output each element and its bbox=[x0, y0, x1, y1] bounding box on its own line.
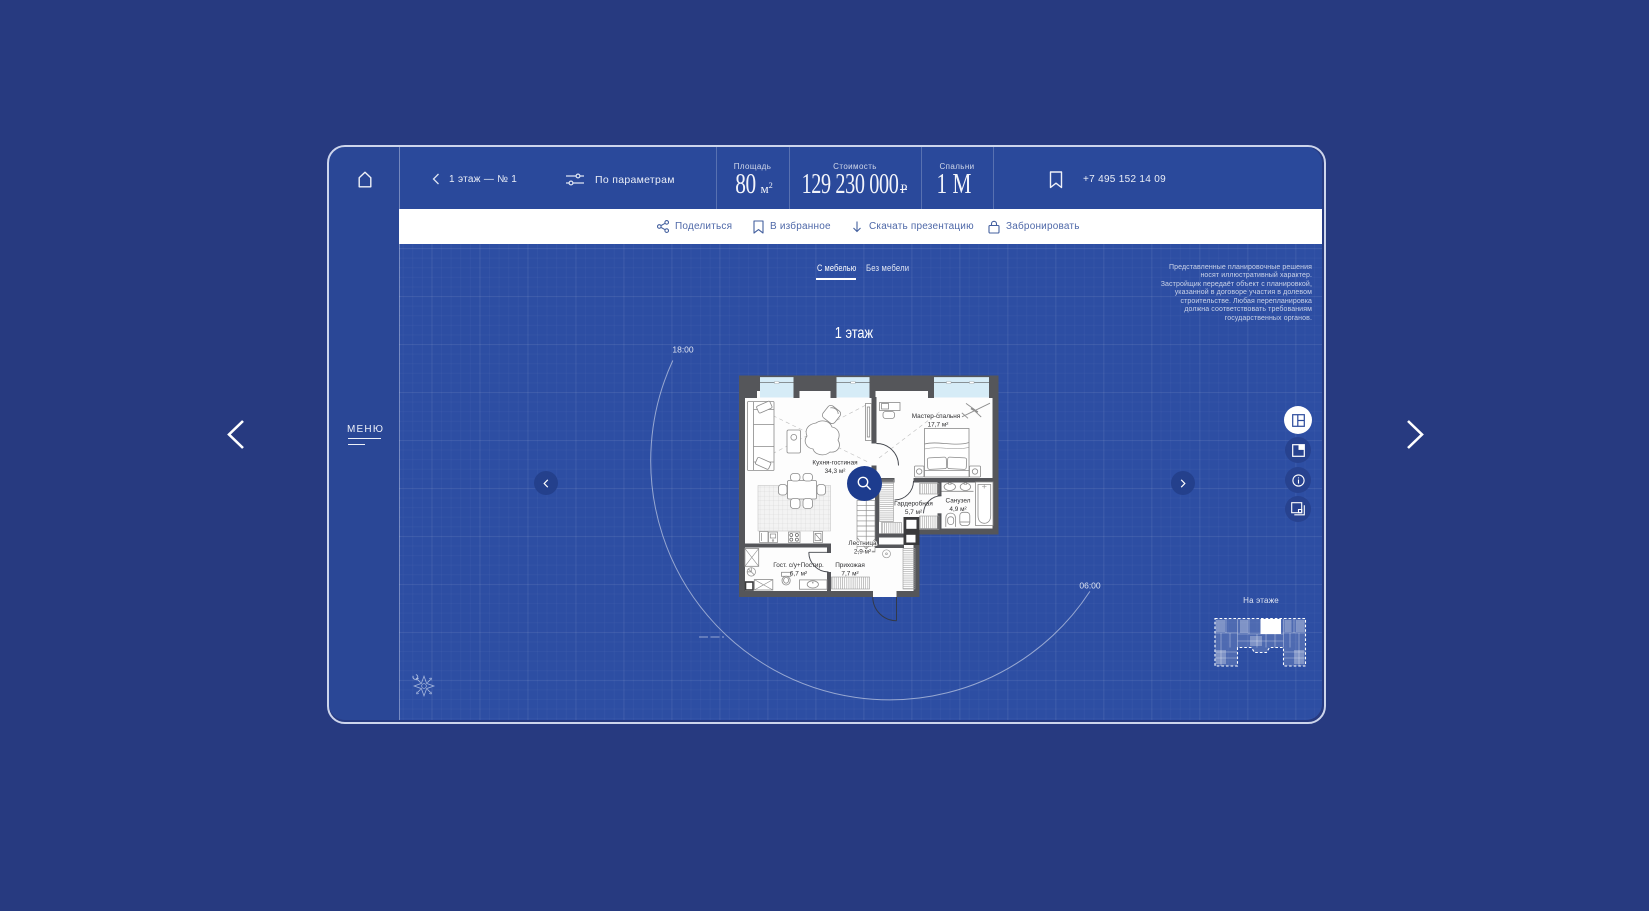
svg-text:Гардеробная: Гардеробная bbox=[894, 500, 933, 508]
svg-text:4,9 м²: 4,9 м² bbox=[949, 506, 966, 513]
svg-text:18:00: 18:00 bbox=[672, 345, 694, 355]
svg-text:34,3 м²: 34,3 м² bbox=[825, 468, 846, 475]
svg-text:5,7 м²: 5,7 м² bbox=[905, 509, 922, 516]
svg-text:17,7 м²: 17,7 м² bbox=[928, 422, 949, 429]
svg-text:6,7 м²: 6,7 м² bbox=[790, 571, 807, 578]
svg-text:Лестница: Лестница bbox=[848, 540, 877, 547]
svg-text:7,7 м²: 7,7 м² bbox=[841, 571, 858, 578]
svg-text:Гост. с/у+Постир.: Гост. с/у+Постир. bbox=[773, 562, 824, 569]
svg-text:Санузел: Санузел bbox=[946, 498, 971, 505]
svg-text:06:00: 06:00 bbox=[1079, 581, 1101, 591]
svg-text:Прихожая: Прихожая bbox=[835, 562, 865, 569]
svg-text:Мастер-спальня: Мастер-спальня bbox=[912, 413, 961, 420]
svg-text:Кухня-гостиная: Кухня-гостиная bbox=[812, 460, 858, 467]
svg-text:2,9 м²: 2,9 м² bbox=[854, 549, 871, 556]
